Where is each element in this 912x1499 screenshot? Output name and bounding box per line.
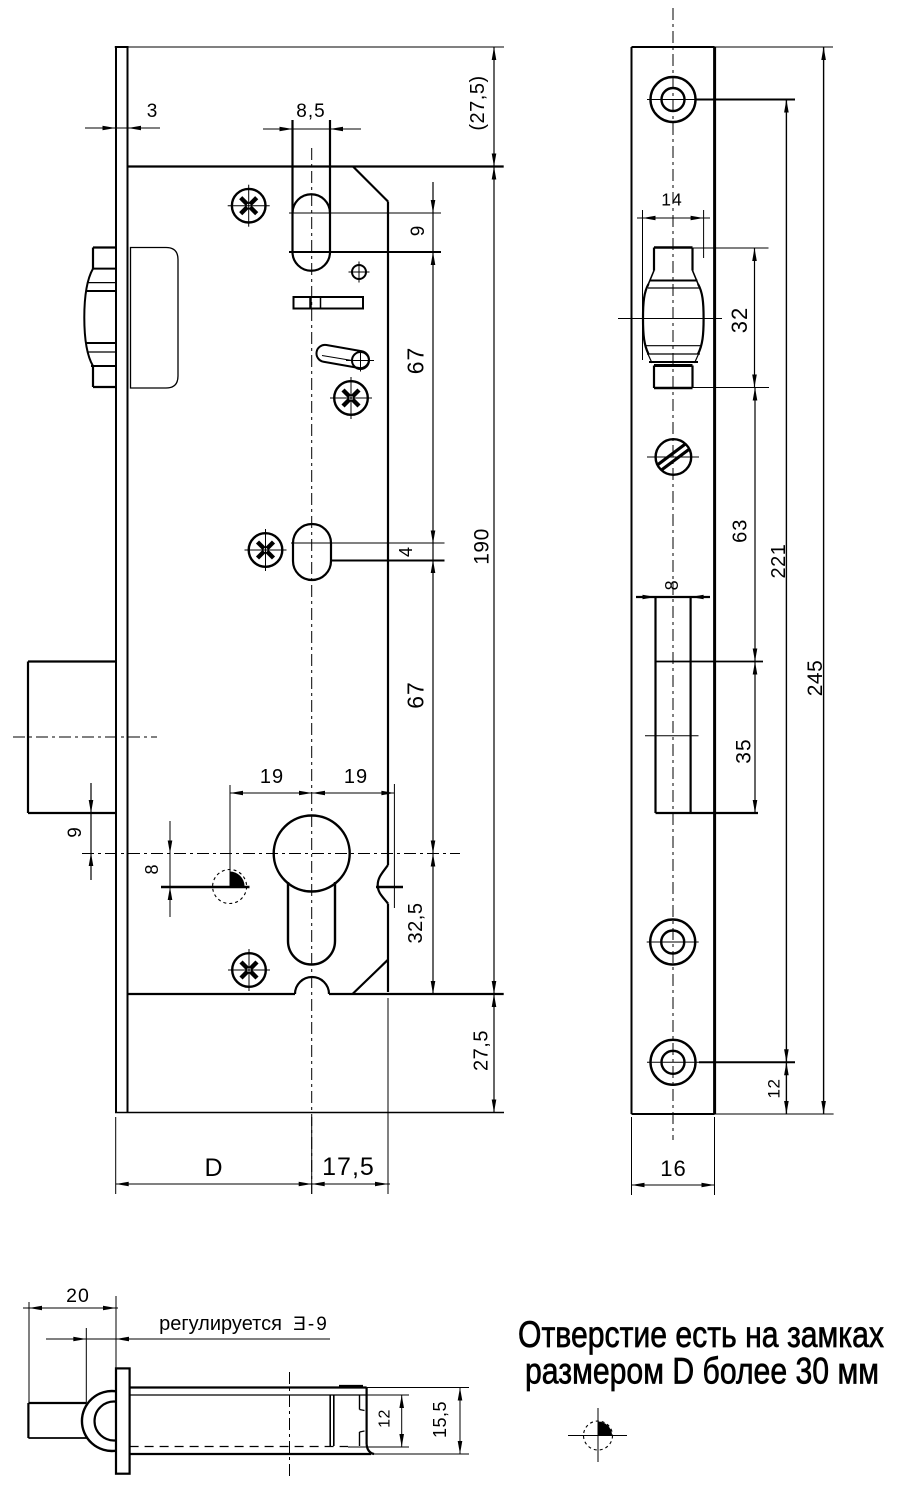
svg-text:4: 4 [396,546,416,557]
svg-text:16: 16 [660,1156,686,1181]
svg-text:19: 19 [260,766,284,788]
svg-text:8: 8 [662,579,682,590]
svg-text:9: 9 [408,225,429,237]
svg-text:регулируется: регулируется [159,1313,282,1335]
svg-text:32,5: 32,5 [405,903,427,944]
svg-text:63: 63 [730,519,752,543]
svg-text:размером D более 30 мм: размером D более 30 мм [525,1351,879,1392]
svg-text:9: 9 [65,826,86,838]
svg-text:(27,5): (27,5) [467,75,489,130]
svg-text:67: 67 [403,681,429,709]
svg-text:3: 3 [147,101,159,122]
svg-text:Отверстие есть на замках: Отверстие есть на замках [518,1314,884,1355]
svg-text:17,5: 17,5 [322,1153,375,1181]
svg-text:35: 35 [733,738,756,763]
svg-text:15,5: 15,5 [430,1401,450,1438]
svg-text:Ǝ-9: Ǝ-9 [293,1314,329,1335]
svg-text:8,5: 8,5 [296,101,325,122]
svg-text:D: D [204,1154,223,1182]
svg-text:12: 12 [765,1079,784,1099]
svg-text:8: 8 [142,863,162,874]
svg-text:14: 14 [661,190,682,210]
svg-text:245: 245 [804,660,827,697]
svg-text:221: 221 [768,544,790,579]
svg-text:32: 32 [727,307,752,333]
svg-text:190: 190 [471,528,494,565]
svg-text:27,5: 27,5 [471,1030,493,1071]
svg-text:12: 12 [377,1409,394,1428]
svg-text:67: 67 [403,347,429,375]
svg-text:20: 20 [66,1285,90,1307]
svg-text:19: 19 [344,766,368,788]
